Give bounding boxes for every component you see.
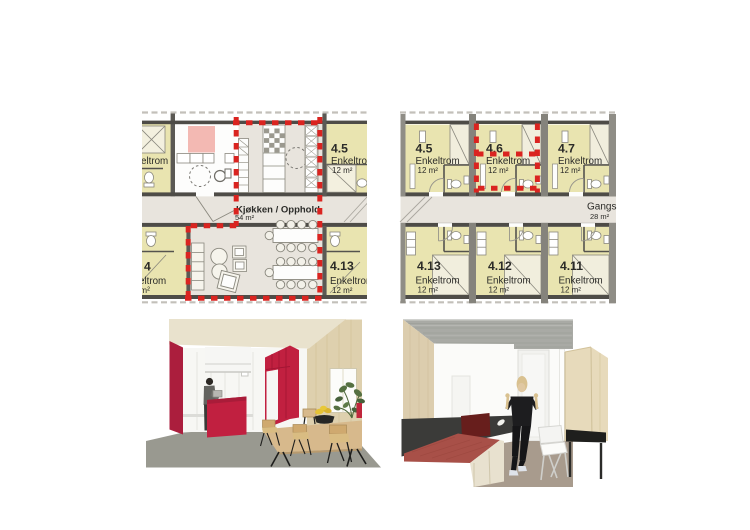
svg-text:4.12: 4.12 (488, 259, 512, 273)
svg-text:4.13: 4.13 (330, 259, 354, 273)
svg-text:4.13: 4.13 (417, 259, 441, 273)
svg-text:12 m²: 12 m² (488, 166, 509, 175)
svg-text:12 m²: 12 m² (418, 166, 439, 175)
svg-text:12 m²: 12 m² (332, 286, 353, 295)
svg-text:12 m²: 12 m² (561, 286, 582, 295)
svg-text:28 m²: 28 m² (590, 212, 610, 221)
svg-text:Gangs: Gangs (587, 202, 616, 213)
svg-text:12 m²: 12 m² (418, 286, 439, 295)
svg-text:4.7: 4.7 (558, 142, 575, 156)
svg-text:4: 4 (144, 260, 151, 274)
svg-text:4.5: 4.5 (416, 142, 433, 156)
svg-text:m²: m² (140, 285, 150, 295)
svg-text:4.5: 4.5 (331, 142, 348, 156)
svg-text:12 m²: 12 m² (560, 166, 581, 175)
svg-text:eltrom: eltrom (141, 156, 168, 167)
svg-text:12 m²: 12 m² (332, 166, 353, 175)
svg-text:4.11: 4.11 (560, 259, 583, 273)
svg-text:12 m²: 12 m² (489, 286, 510, 295)
